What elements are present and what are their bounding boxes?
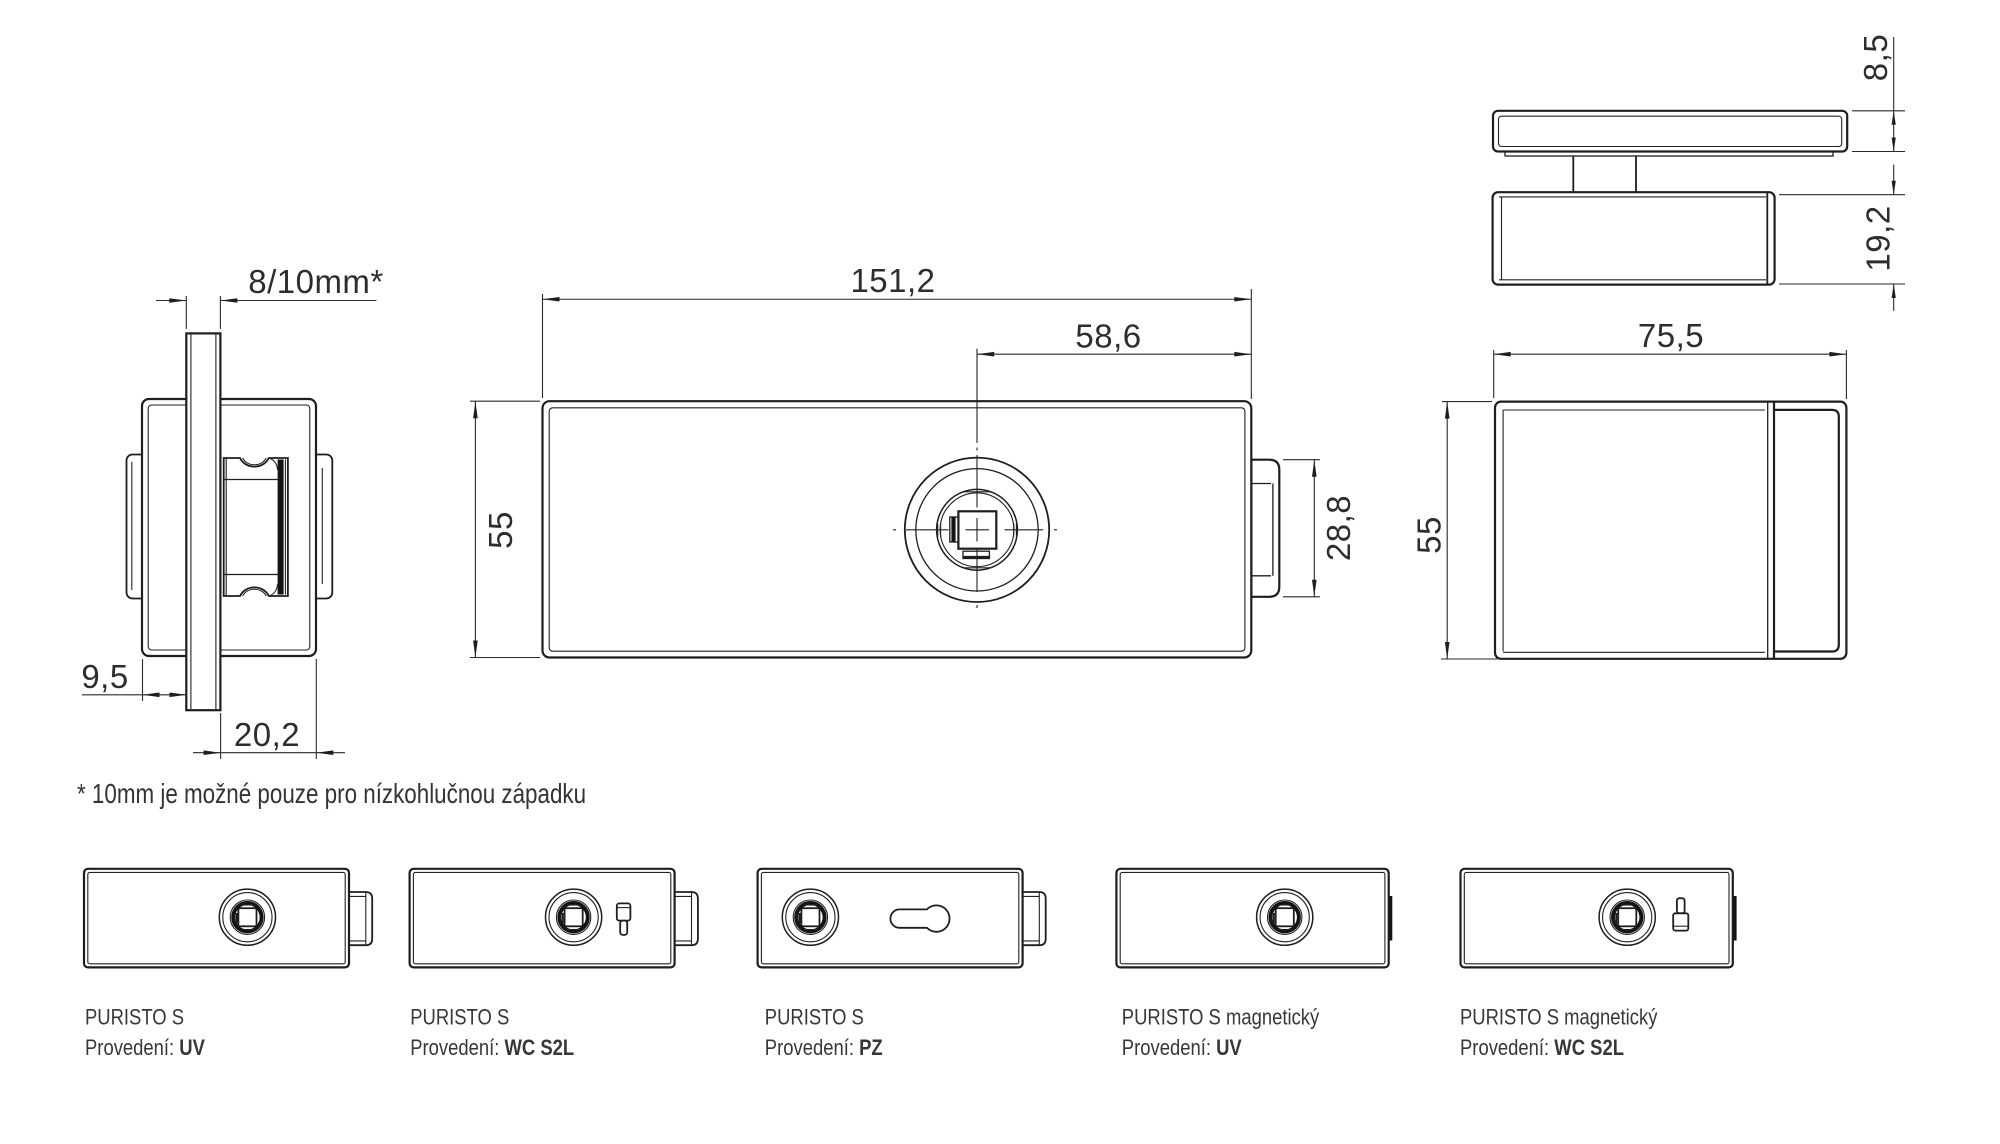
svg-text:8/10mm*: 8/10mm* bbox=[248, 263, 384, 300]
svg-text:* 10mm je možné pouze pro nízk: * 10mm je možné pouze pro nízkohlučnou z… bbox=[77, 779, 586, 810]
svg-text:20,2: 20,2 bbox=[234, 716, 300, 753]
svg-text:Provedení: UV: Provedení: UV bbox=[1122, 1035, 1242, 1060]
svg-text:9,5: 9,5 bbox=[81, 658, 128, 695]
svg-text:8,5: 8,5 bbox=[1857, 34, 1894, 81]
svg-text:PURISTO S: PURISTO S bbox=[410, 1005, 509, 1030]
svg-text:55: 55 bbox=[1411, 516, 1448, 554]
svg-text:Provedení: WC S2L: Provedení: WC S2L bbox=[1460, 1035, 1624, 1060]
svg-text:55: 55 bbox=[482, 511, 519, 549]
svg-text:PURISTO S magnetický: PURISTO S magnetický bbox=[1122, 1005, 1320, 1030]
svg-text:Provedení: PZ: Provedení: PZ bbox=[765, 1035, 883, 1060]
svg-text:Provedení: WC S2L: Provedení: WC S2L bbox=[410, 1035, 574, 1060]
svg-text:19,2: 19,2 bbox=[1860, 205, 1897, 271]
svg-text:PURISTO S: PURISTO S bbox=[85, 1005, 184, 1030]
svg-text:28,8: 28,8 bbox=[1320, 495, 1357, 561]
svg-text:PURISTO S magnetický: PURISTO S magnetický bbox=[1460, 1005, 1658, 1030]
svg-text:58,6: 58,6 bbox=[1075, 318, 1141, 355]
svg-text:75,5: 75,5 bbox=[1638, 317, 1704, 354]
svg-text:151,2: 151,2 bbox=[850, 262, 935, 299]
svg-text:Provedení: UV: Provedení: UV bbox=[85, 1035, 205, 1060]
svg-text:PURISTO S: PURISTO S bbox=[765, 1005, 864, 1030]
